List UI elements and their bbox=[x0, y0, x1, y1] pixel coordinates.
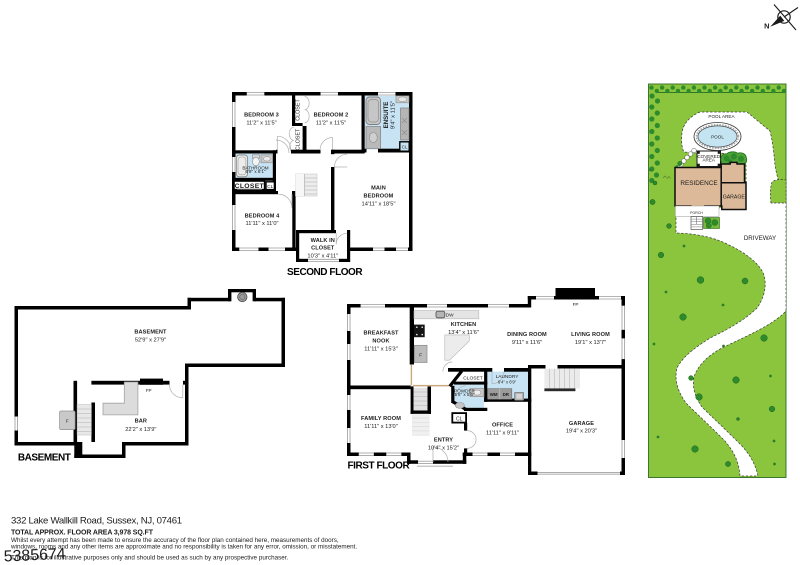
svg-text:6'9" x 8'1": 6'9" x 8'1" bbox=[245, 169, 265, 174]
svg-text:DRIVEWAY: DRIVEWAY bbox=[744, 235, 776, 242]
svg-text:DR: DR bbox=[503, 392, 510, 397]
svg-text:11'11" x 11'0": 11'11" x 11'0" bbox=[245, 221, 278, 227]
svg-text:CLOSET: CLOSET bbox=[463, 376, 483, 382]
svg-text:BEDROOM 2: BEDROOM 2 bbox=[314, 113, 349, 119]
svg-text:CL: CL bbox=[402, 145, 408, 150]
svg-text:10'4" x 15'2": 10'4" x 15'2" bbox=[428, 446, 459, 452]
svg-text:BAR: BAR bbox=[135, 419, 147, 425]
svg-text:NOOK: NOOK bbox=[372, 338, 389, 344]
svg-text:9'4" x 11'5": 9'4" x 11'5" bbox=[391, 101, 397, 129]
svg-text:N: N bbox=[764, 22, 769, 31]
svg-text:DINING ROOM: DINING ROOM bbox=[507, 332, 547, 338]
svg-text:LIVING ROOM: LIVING ROOM bbox=[571, 332, 610, 338]
svg-text:KITCHEN: KITCHEN bbox=[451, 322, 477, 328]
svg-text:GARAGE: GARAGE bbox=[723, 195, 746, 201]
svg-text:WALK IN: WALK IN bbox=[311, 238, 335, 244]
svg-text:MAIN: MAIN bbox=[371, 186, 386, 192]
svg-text:F: F bbox=[419, 352, 422, 358]
svg-text:POOL AREA: POOL AREA bbox=[708, 114, 735, 119]
svg-text:FP: FP bbox=[146, 388, 152, 393]
svg-text:FP: FP bbox=[573, 302, 579, 307]
svg-text:DW: DW bbox=[446, 313, 454, 318]
svg-text:AREA: AREA bbox=[702, 158, 715, 163]
svg-text:FAMILY ROOM: FAMILY ROOM bbox=[361, 416, 401, 422]
svg-text:11'11" x 9'11": 11'11" x 9'11" bbox=[486, 430, 519, 436]
svg-text:F: F bbox=[66, 419, 69, 424]
svg-text:CL: CL bbox=[267, 184, 273, 189]
svg-text:BEDROOM: BEDROOM bbox=[364, 194, 394, 200]
svg-text:CLOSET: CLOSET bbox=[311, 245, 335, 251]
svg-text:19'1" x 13'7": 19'1" x 13'7" bbox=[575, 340, 606, 346]
svg-text:11'11" x 15'3": 11'11" x 15'3" bbox=[364, 346, 398, 352]
svg-text:BASEMENT: BASEMENT bbox=[134, 330, 167, 336]
svg-text:POOL: POOL bbox=[711, 135, 724, 140]
svg-text:5385674: 5385674 bbox=[3, 546, 66, 565]
svg-text:11'2" x 11'5": 11'2" x 11'5" bbox=[246, 120, 276, 126]
svg-text:ENTRY: ENTRY bbox=[434, 438, 453, 444]
svg-text:11'11" x 13'0": 11'11" x 13'0" bbox=[364, 424, 398, 430]
svg-text:6'4" x 6'9": 6'4" x 6'9" bbox=[498, 380, 517, 385]
svg-text:332 Lake Wallkill Road, Sussex: 332 Lake Wallkill Road, Sussex, NJ, 0746… bbox=[11, 516, 182, 527]
svg-text:CLOSET: CLOSET bbox=[296, 128, 302, 150]
svg-text:14'11" x 18'5": 14'11" x 18'5" bbox=[362, 202, 396, 208]
svg-text:22'2" x 13'9": 22'2" x 13'9" bbox=[125, 427, 156, 433]
svg-text:FIRST FLOOR: FIRST FLOOR bbox=[348, 461, 411, 472]
svg-text:CLOSET: CLOSET bbox=[295, 99, 301, 121]
svg-text:BEDROOM 3: BEDROOM 3 bbox=[244, 113, 279, 119]
svg-text:10'3" x 4'11": 10'3" x 4'11" bbox=[307, 254, 338, 260]
svg-text:SECOND FLOOR: SECOND FLOOR bbox=[287, 267, 363, 278]
svg-text:52'9" x 27'9": 52'9" x 27'9" bbox=[135, 338, 166, 344]
svg-text:PORCH: PORCH bbox=[690, 211, 703, 215]
svg-text:WM: WM bbox=[490, 392, 498, 397]
svg-text:19'4" x 20'3": 19'4" x 20'3" bbox=[566, 429, 597, 435]
svg-text:5'5" x 5'6": 5'5" x 5'6" bbox=[454, 392, 474, 397]
svg-text:BASEMENT: BASEMENT bbox=[18, 453, 71, 464]
svg-text:OFFICE: OFFICE bbox=[492, 423, 513, 429]
svg-text:BEDROOM 4: BEDROOM 4 bbox=[245, 213, 281, 219]
svg-text:11'2" x 11'5": 11'2" x 11'5" bbox=[316, 120, 346, 126]
svg-text:BREAKFAST: BREAKFAST bbox=[363, 331, 399, 337]
svg-text:RESIDENCE: RESIDENCE bbox=[680, 180, 717, 187]
svg-text:9'11" x 11'6": 9'11" x 11'6" bbox=[512, 340, 542, 346]
svg-text:CL: CL bbox=[456, 417, 463, 423]
svg-text:TOTAL APPROX. FLOOR AREA 3,978: TOTAL APPROX. FLOOR AREA 3,978 SQ.FT bbox=[11, 530, 154, 537]
svg-text:13'4" x 11'6": 13'4" x 11'6" bbox=[448, 330, 479, 336]
svg-text:ENSUITE: ENSUITE bbox=[383, 102, 390, 129]
svg-text:GARAGE: GARAGE bbox=[569, 421, 594, 427]
